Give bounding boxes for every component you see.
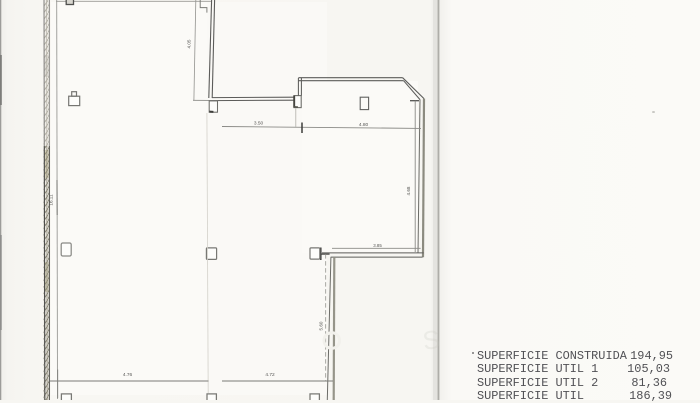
svg-text:4.72: 4.72 [265,372,275,378]
svg-text:4.05: 4.05 [187,39,192,48]
svg-text:4.80: 4.80 [359,122,369,128]
svg-text:4.76: 4.76 [123,372,133,378]
svg-text:16.11: 16.11 [49,194,54,206]
svg-text:3.50: 3.50 [254,121,264,127]
svg-text:4.68: 4.68 [406,186,411,195]
svg-text:3.85: 3.85 [373,243,382,248]
svg-text:5.60: 5.60 [319,321,324,330]
